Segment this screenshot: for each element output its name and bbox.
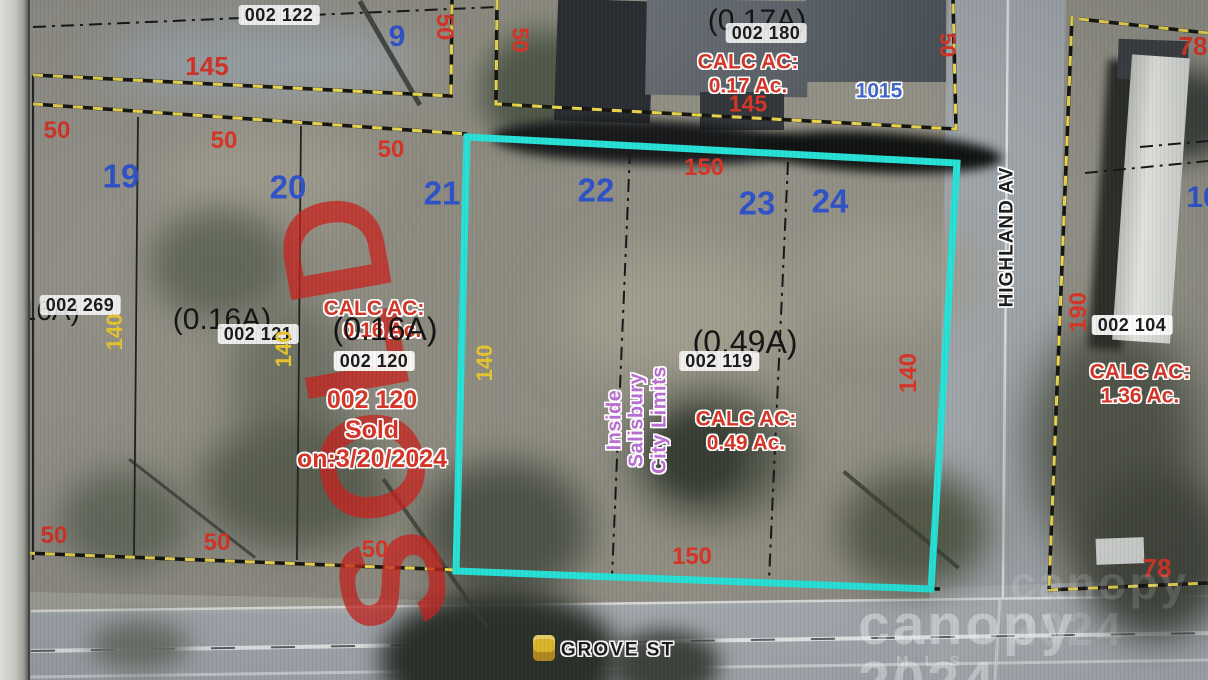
parcel-id-002-120: 002 120 xyxy=(334,351,415,371)
lot19-width-bottom: 50 xyxy=(41,524,68,548)
acreage-016-120: (0.16A) xyxy=(333,313,438,345)
parcel-id-002-119: 002 119 xyxy=(679,351,759,371)
lot-number-23: 23 xyxy=(739,187,776,220)
dimension-150-bottom: 150 xyxy=(672,545,712,569)
lot21-width-top: 50 xyxy=(378,138,405,162)
parcel-id-002-122: 002 122 xyxy=(239,5,320,25)
dimension-150-top: 150 xyxy=(684,156,724,180)
street-label-grove-st: GROVE ST xyxy=(561,641,675,660)
lot-number-21: 21 xyxy=(424,177,461,210)
dimension-140-119-right: 140 xyxy=(897,353,921,393)
parcel-id-002-180: 002 180 xyxy=(726,23,807,43)
lot-number-10: 10 xyxy=(1186,183,1208,213)
dimension-140-269: 140 xyxy=(104,314,126,351)
house-number-1015: 1015 xyxy=(856,81,903,102)
dimension-145-top: 145 xyxy=(185,53,228,79)
lot21-width-bottom: 50 xyxy=(362,538,389,562)
parcel-id-002-269: 002 269 xyxy=(40,295,121,315)
parcel-boundary-lines-yellow xyxy=(25,0,1208,590)
parcel-id-002-104: 002 104 xyxy=(1092,315,1173,335)
lot-number-24: 24 xyxy=(812,185,849,218)
lot-number-20: 20 xyxy=(270,171,307,204)
lot-number-22: 22 xyxy=(578,174,615,207)
dimension-78-top: 78 xyxy=(1179,33,1208,59)
watermark-mls: M L S xyxy=(896,654,966,669)
lot20-width-bottom: 50 xyxy=(204,531,231,555)
street-label-highland-av: HIGHLAND AV xyxy=(998,167,1017,308)
dimension-140-121: 140 xyxy=(273,331,295,368)
route-marker-icon xyxy=(533,635,555,661)
dimension-50-lot9: 50 xyxy=(432,14,456,41)
lot19-width-top: 50 xyxy=(44,119,71,143)
lot-number-9: 9 xyxy=(389,22,406,52)
dimension-140-119-left: 140 xyxy=(474,345,496,382)
dimension-145-mid: 145 xyxy=(729,93,767,116)
city-limits-note: Inside Salisbury City Limits xyxy=(603,366,670,474)
calc-acreage-136: CALC AC: 1.36 Ac. xyxy=(1090,360,1191,407)
dimension-50-180-right: 50 xyxy=(936,33,958,57)
screen-bezel xyxy=(0,0,30,680)
lot-number-19: 19 xyxy=(103,160,140,193)
lot20-width-top: 50 xyxy=(211,129,238,153)
dimension-50-180-left: 50 xyxy=(509,27,532,53)
sold-note: 002 120 Sold on:3/20/2024 xyxy=(297,386,447,475)
calc-acreage-049: CALC AC: 0.49 Ac. xyxy=(696,407,797,454)
gis-parcel-map[interactable]: SOLD 002 122 145 9 50 (0.17A) 002 180 CA… xyxy=(0,0,1208,680)
dimension-190: 190 xyxy=(1067,292,1091,332)
property-dashdot-lines xyxy=(33,7,1208,580)
